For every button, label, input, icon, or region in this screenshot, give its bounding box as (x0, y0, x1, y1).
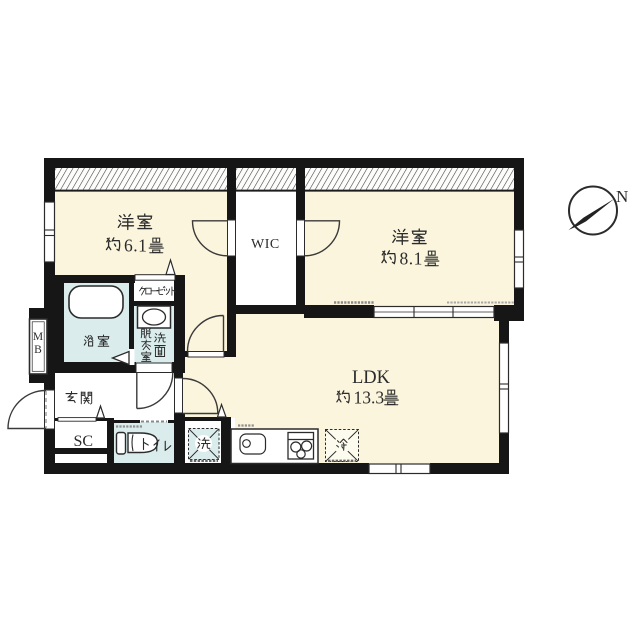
svg-text:SC: SC (74, 433, 94, 450)
svg-text:B: B (34, 344, 42, 356)
svg-text:8.1: 8.1 (400, 249, 423, 269)
svg-text:N: N (616, 187, 628, 206)
svg-text:13.3: 13.3 (354, 388, 385, 408)
svg-text:M: M (33, 331, 43, 343)
svg-text:WIC: WIC (251, 237, 280, 252)
svg-text:6.1: 6.1 (124, 236, 147, 256)
svg-text:LDK: LDK (352, 368, 391, 388)
